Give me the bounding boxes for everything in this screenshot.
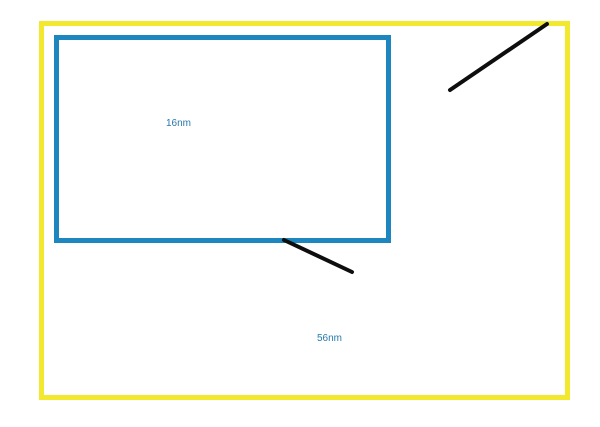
outer-rect-dimension-label: 56nm bbox=[317, 333, 342, 344]
paint-canvas: 16nm 56nm bbox=[0, 0, 600, 427]
inner-blue-rectangle bbox=[54, 35, 391, 243]
inner-rect-dimension-label: 16nm bbox=[166, 118, 191, 129]
